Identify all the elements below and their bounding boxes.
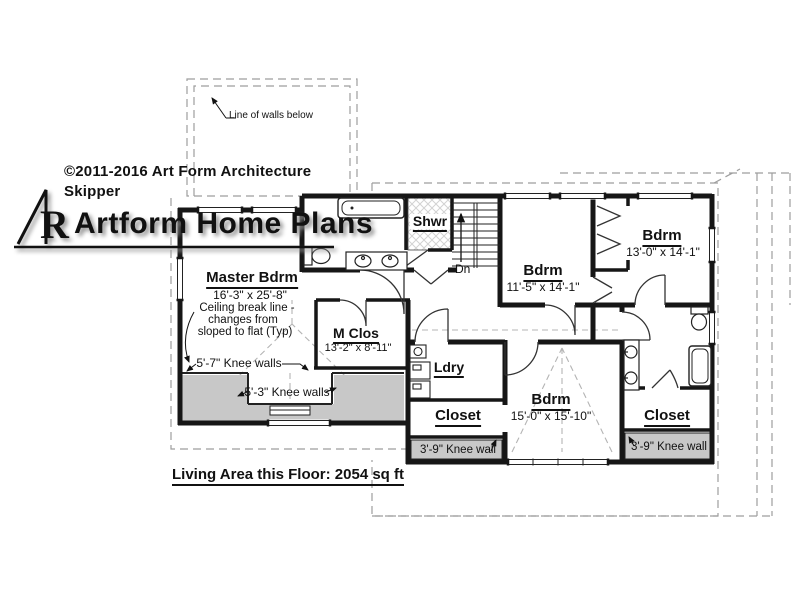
floor-plan-page: R Line of walls below ©2011-2016 Art For… (0, 0, 800, 600)
room-label-closet-left: Closet (435, 407, 481, 427)
note-line-of-walls-below: Line of walls below (229, 111, 313, 122)
room-label-closet-right: Closet (644, 407, 690, 427)
ceiling-break-note-line1: Ceiling break line - (199, 302, 294, 314)
double-vanity-icon (346, 252, 407, 270)
ceiling-break-note-line3: sloped to flat (Typ) (198, 326, 293, 338)
copyright-line1: ©2011-2016 Art Form Architecture (64, 164, 311, 180)
room-label-ldry: Ldry (434, 359, 464, 378)
laundry-sink-icon (410, 345, 426, 358)
washer-dryer-icon (410, 362, 430, 398)
ceiling-break-note-line2: changes from (208, 314, 278, 326)
room-dims-bdrm-top-right: 13'-0" x 14'-1" (626, 246, 700, 259)
svg-text:R: R (40, 202, 70, 247)
room-dims-m-clos: 13'-2" x 8'-11" (325, 343, 392, 355)
room-label-shwr: Shwr (413, 213, 447, 232)
floorplan-drawing: R (0, 0, 800, 600)
stairs (452, 203, 500, 268)
knee-walls-53-label: 5'-3" Knee walls (244, 386, 329, 399)
living-area-text: Living Area this Floor: 2054 sq ft (172, 466, 404, 486)
hall-bath-toilet-icon (691, 307, 708, 330)
room-label-master-bdrm: Master Bdrm (206, 269, 298, 289)
stairs-dn-label: Dn (455, 263, 470, 276)
knee-walls-57-label: 5'-7" Knee walls (196, 357, 281, 370)
room-label-bdrm-middle: Bdrm (523, 262, 562, 282)
room-label-bdrm-top-right: Bdrm (642, 227, 681, 247)
room-dims-master-bdrm: 16'-3" x 25'-8" (213, 289, 287, 302)
knee-wall-39-right-label: 3'-9" Knee wall (631, 441, 707, 453)
hall-bath-vanity-icon (624, 340, 639, 390)
room-label-bdrm-bottom: Bdrm (531, 391, 570, 411)
hall-bath-tub-icon (689, 346, 711, 386)
living-area-label: Living Area this Floor: 2054 sq ft (172, 467, 404, 483)
room-dims-bdrm-middle: 11'-5" x 14'-1" (507, 281, 580, 294)
room-dims-bdrm-bottom: 15'-0" x 15'-10" (511, 410, 591, 423)
knee-wall-39-left-label: 3'-9" Knee wall (420, 444, 496, 456)
toilet-icon (304, 247, 330, 265)
copyright-line2: Skipper (64, 184, 120, 200)
logo-wordmark: Artform Home Plans (74, 208, 373, 240)
